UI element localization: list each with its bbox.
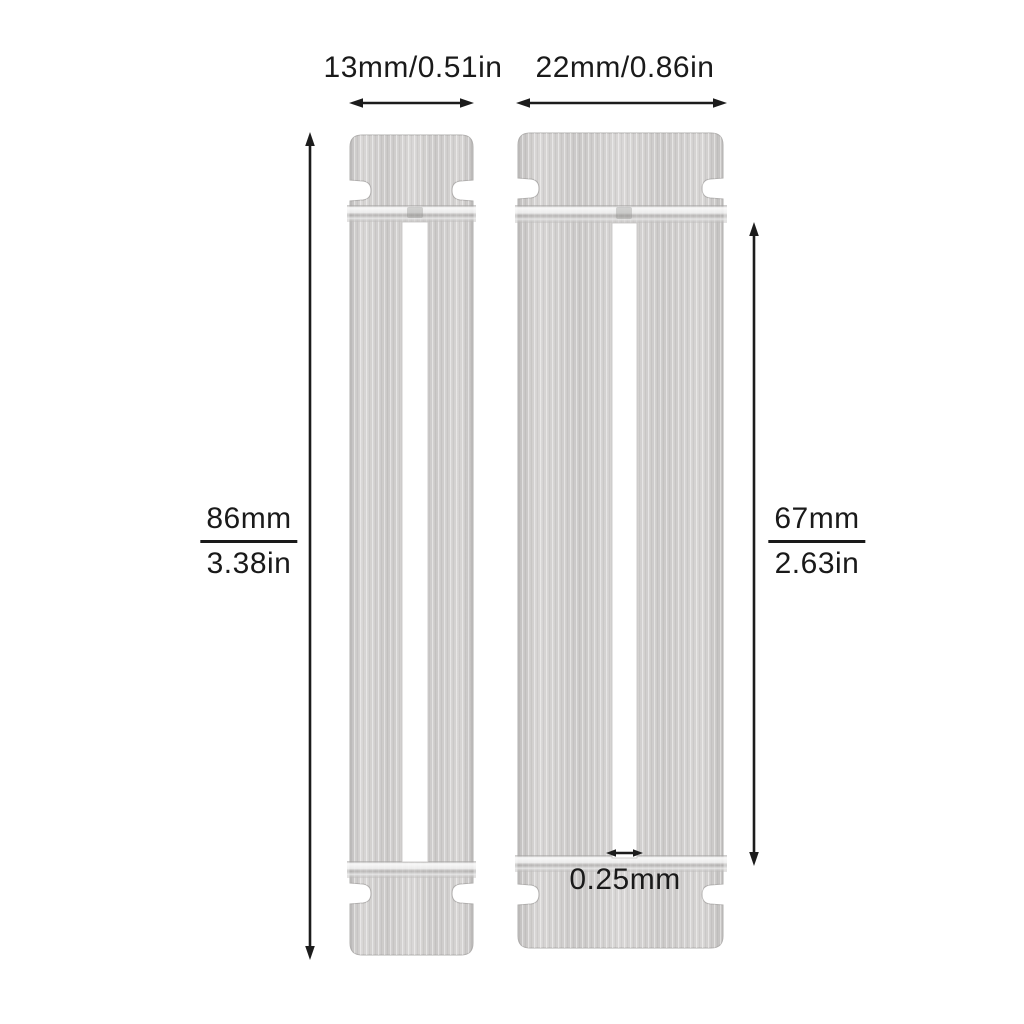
wide-strip-graphic [515,133,727,948]
slot-height-in: 2.63in [775,543,860,579]
narrow-strip-top-fold-notch [407,207,423,218]
slot-width-label: 0.25mm [569,865,680,895]
slot-height-label: 67mm 2.63in [768,504,865,579]
narrow-strip-graphic [347,135,476,955]
slot-height-arrow [749,222,759,866]
wide-strip-slot [612,223,637,858]
dimension-diagram: 13mm/0.51in 22mm/0.86in 86mm 3.38in 67mm… [0,0,1024,1024]
overall-height-in: 3.38in [207,543,292,579]
overall-height-label: 86mm 3.38in [200,504,297,579]
overall-height-arrow [305,132,315,960]
narrow-strip-bottom-fold [347,861,476,878]
wide-width-label: 22mm/0.86in [536,53,715,83]
slot-height-mm: 67mm [768,504,865,543]
narrow-width-label: 13mm/0.51in [324,53,503,83]
strips-and-arrows-graphic [0,0,1024,1024]
narrow-strip-slot [402,222,428,862]
narrow-width-arrow [349,98,474,108]
overall-height-mm: 86mm [200,504,297,543]
wide-strip-top-fold-notch [616,207,632,219]
wide-width-arrow [516,98,727,108]
